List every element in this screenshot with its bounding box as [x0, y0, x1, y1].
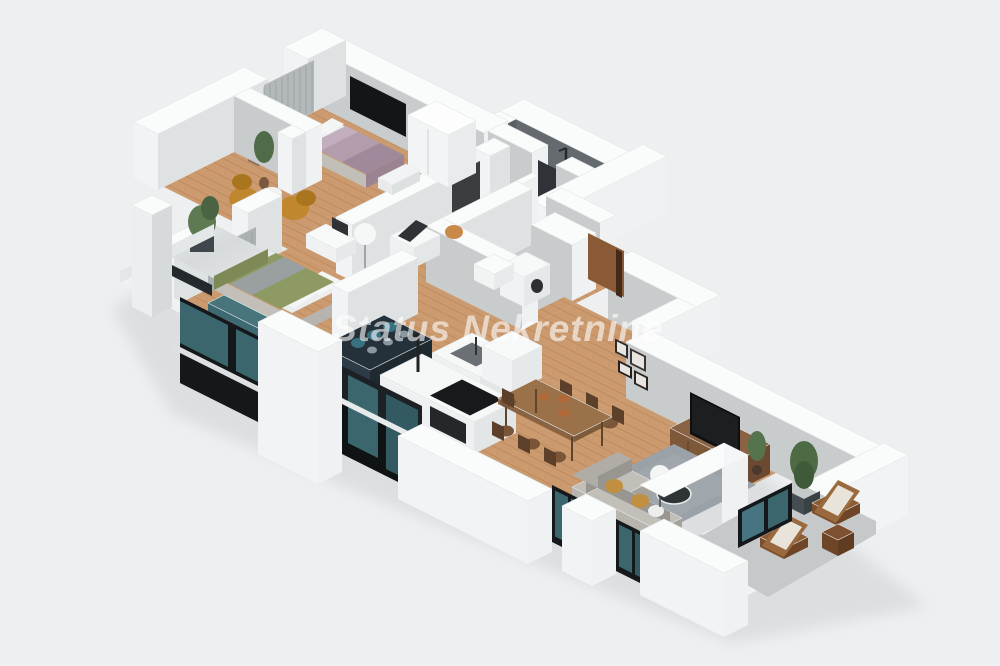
svg-text:Status Nekretnine: Status Nekretnine — [332, 308, 664, 349]
